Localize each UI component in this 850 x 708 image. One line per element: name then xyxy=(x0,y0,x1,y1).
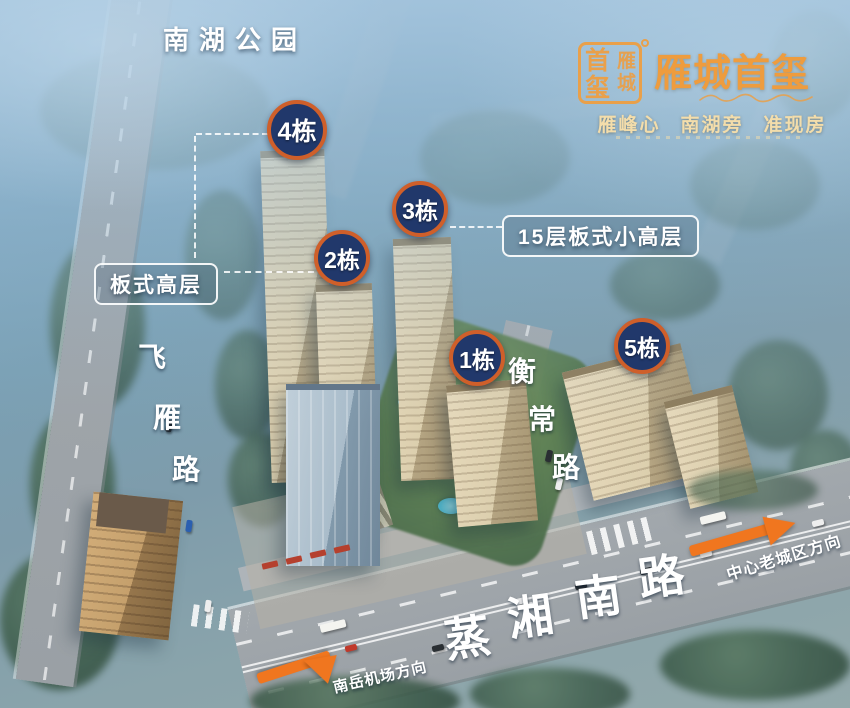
vehicle xyxy=(185,520,193,533)
road-name-zhengxiang: 蒸 xyxy=(437,599,498,672)
tree-row xyxy=(688,470,818,510)
badge-building-2[interactable]: 2栋 xyxy=(314,230,370,286)
road-name-feiyan: 路 xyxy=(169,448,203,488)
logo-slogan: 雁峰心 南湖旁 准现房 xyxy=(584,110,840,137)
road-name-feiyan: 雁 xyxy=(150,396,184,436)
logo-title: 雁城首玺 xyxy=(654,42,810,97)
tree-cluster xyxy=(420,110,570,205)
lowrise-building xyxy=(79,492,183,641)
seal-char: 雁 xyxy=(617,51,636,73)
badge-building-3[interactable]: 3栋 xyxy=(392,181,448,237)
slogan-part: 准现房 xyxy=(764,110,827,137)
badge-building-5[interactable]: 5栋 xyxy=(614,318,670,374)
project-logo: 首 玺 雁 城 雁城首玺 雁峰心 南湖旁 准现房 xyxy=(570,36,846,142)
site-plan-render: 南湖公园 首 玺 雁 城 雁城首玺 雁峰心 南湖旁 准现房 4栋 3栋 2栋 1… xyxy=(0,0,850,708)
slogan-part: 雁峰心 xyxy=(597,110,660,137)
seal-char: 城 xyxy=(617,73,636,95)
badge-building-4[interactable]: 4栋 xyxy=(267,100,327,160)
road-name-zhengxiang: 南 xyxy=(568,558,629,631)
logo-seal: 首 玺 雁 城 xyxy=(578,42,642,104)
tree-cluster xyxy=(610,250,720,320)
callout-15f-slab-midrise[interactable]: 15层板式小高层 xyxy=(502,215,699,257)
callout-line xyxy=(194,136,196,258)
road-name-hengchang: 常 xyxy=(525,398,559,438)
seal-char: 首 xyxy=(585,47,610,74)
distant-road xyxy=(313,0,416,200)
callout-slab-highrise[interactable]: 板式高层 xyxy=(94,263,218,305)
seal-main-text: 首 玺 xyxy=(585,47,610,101)
callout-line xyxy=(224,271,314,273)
seal-char: 玺 xyxy=(585,74,610,101)
park-label: 南湖公园 xyxy=(163,20,307,57)
slogan-subtext-decoration xyxy=(616,136,800,139)
tree-cluster xyxy=(690,140,820,230)
glass-office-tower xyxy=(286,384,380,566)
road-name-feiyan: 飞 xyxy=(135,336,169,376)
callout-line xyxy=(196,133,268,135)
badge-building-1[interactable]: 1栋 xyxy=(449,330,505,386)
road-name-hengchang: 衡 xyxy=(505,350,539,390)
road-name-zhengxiang: 湘 xyxy=(500,578,561,651)
road-name-hengchang: 路 xyxy=(549,446,583,486)
slogan-part: 南湖旁 xyxy=(680,110,743,137)
logo-script-flourish xyxy=(696,90,816,104)
seal-dot-icon xyxy=(641,39,649,47)
tree-row xyxy=(470,668,630,708)
seal-overlay-text: 雁 城 xyxy=(617,51,636,95)
tree-row xyxy=(660,630,850,700)
road-name-zhengxiang: 路 xyxy=(631,538,692,611)
callout-line xyxy=(450,226,502,228)
